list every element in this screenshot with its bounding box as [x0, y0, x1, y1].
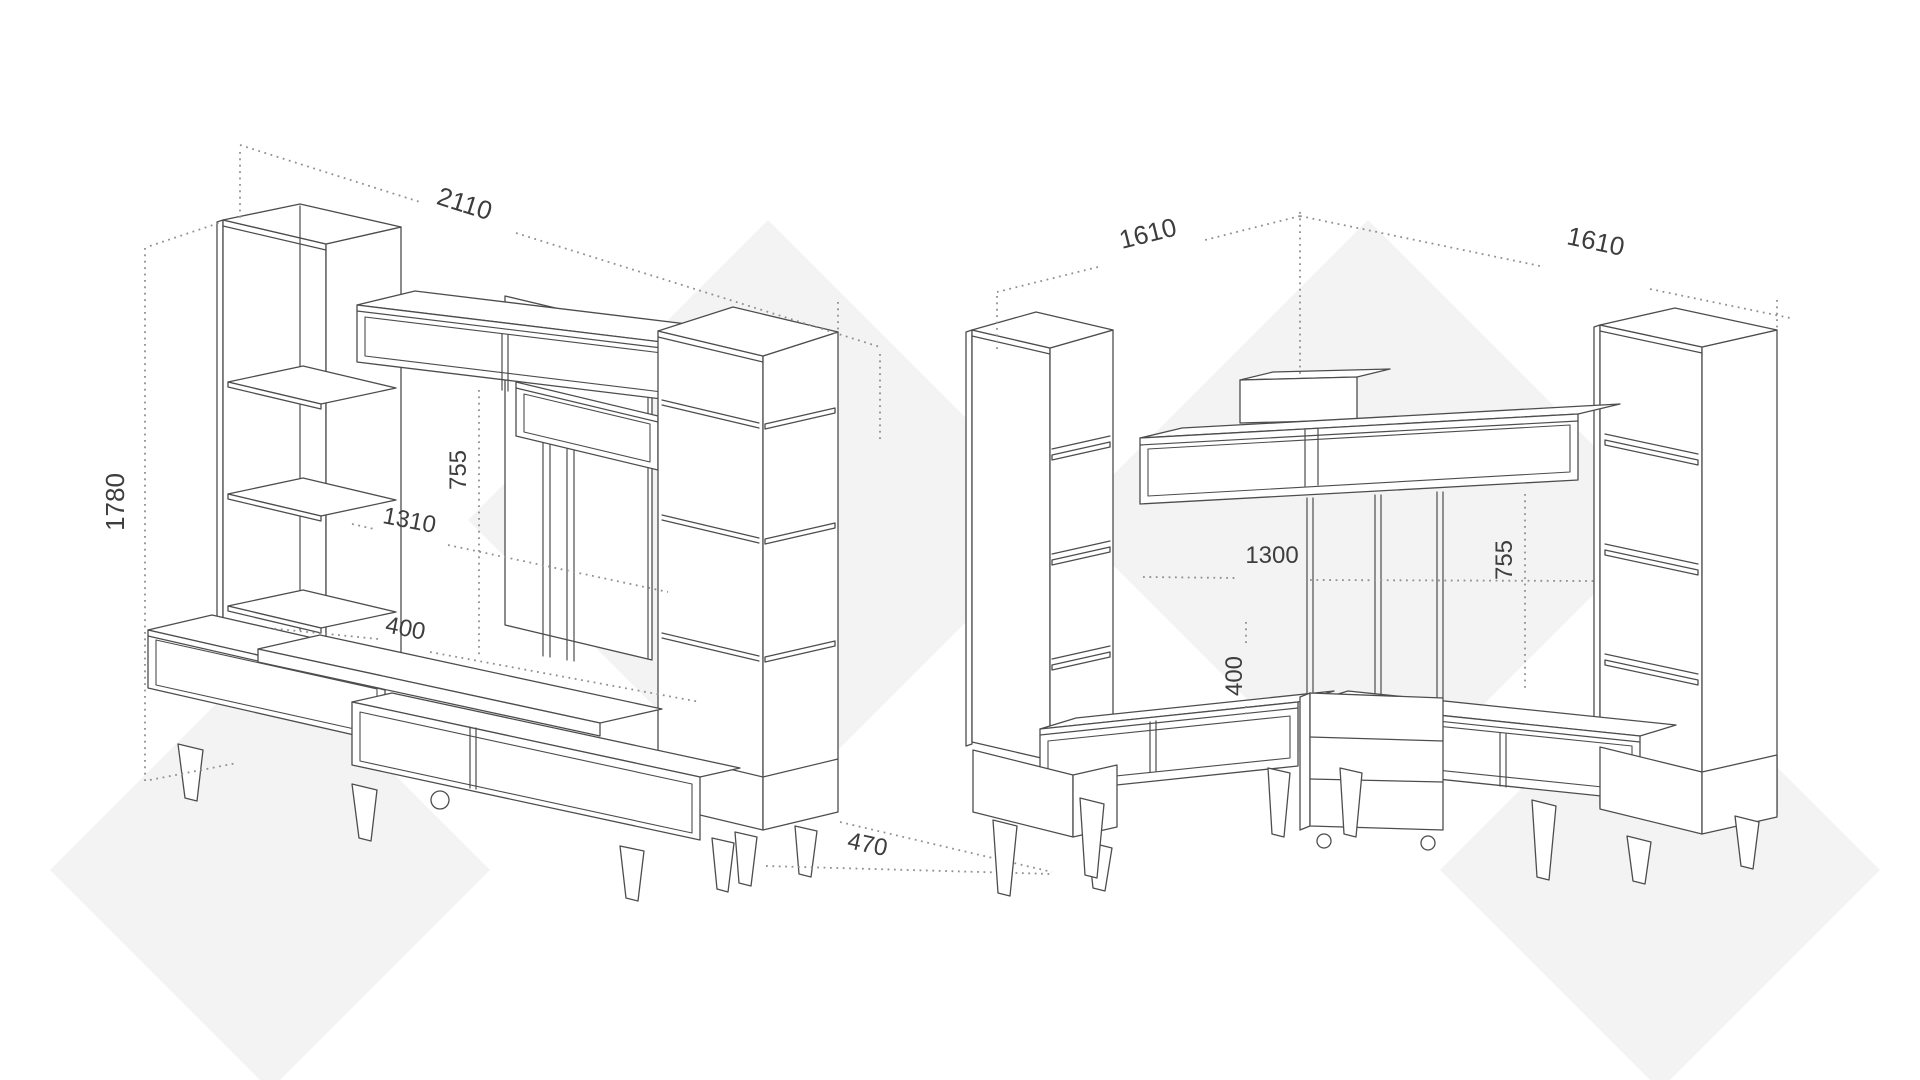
- tapered-leg: [993, 820, 1017, 896]
- dim-label-niche-height: 755: [1491, 540, 1518, 580]
- caster-wheel: [1317, 834, 1331, 848]
- tapered-leg: [795, 826, 817, 877]
- dim-label-right-wall: 1610: [1564, 221, 1627, 262]
- drawer-unit-front: [1310, 693, 1443, 830]
- bookcase-back-strip: [1594, 325, 1600, 781]
- tapered-leg: [712, 838, 734, 892]
- dim-line-width: [240, 145, 420, 202]
- bookcase-left-side: [972, 330, 1050, 760]
- drawing-canvas: 2110 1780 755 1310 400 470: [0, 0, 1920, 1080]
- drawer-unit-side: [1300, 693, 1310, 830]
- tapered-leg: [735, 832, 757, 886]
- tapered-leg: [1268, 768, 1290, 837]
- dim-line-left-wall: [1205, 216, 1300, 240]
- bookcase-back-strip: [966, 330, 972, 746]
- caster-wheel: [1421, 836, 1435, 850]
- bookcase-right-side: [1702, 330, 1777, 832]
- bookcase-back-strip: [217, 220, 223, 650]
- dim-extension: [150, 222, 222, 246]
- dim-label-depth: 470: [845, 827, 890, 862]
- corner-left-bookcase: [966, 312, 1113, 760]
- dim-line-left-wall: [997, 267, 1098, 292]
- furniture-technical-drawing: 2110 1780 755 1310 400 470: [0, 0, 1920, 1080]
- tapered-leg: [620, 846, 644, 901]
- bookcase-right-opening: [1050, 330, 1113, 760]
- cabinet-right-side: [763, 332, 838, 830]
- dim-label-width: 2110: [434, 181, 496, 226]
- dim-label-bench-height: 400: [1221, 656, 1248, 696]
- dim-label-niche-width: 1300: [1245, 542, 1298, 569]
- dim-label-height: 1780: [100, 473, 130, 531]
- corner-drawer-unit: [1300, 693, 1443, 850]
- caster-wheel: [431, 791, 449, 809]
- right-cabinet: [658, 307, 838, 830]
- tv-panel-front: [1240, 377, 1357, 423]
- dim-label-niche-height: 755: [445, 450, 472, 490]
- dim-label-left-wall: 1610: [1116, 212, 1179, 255]
